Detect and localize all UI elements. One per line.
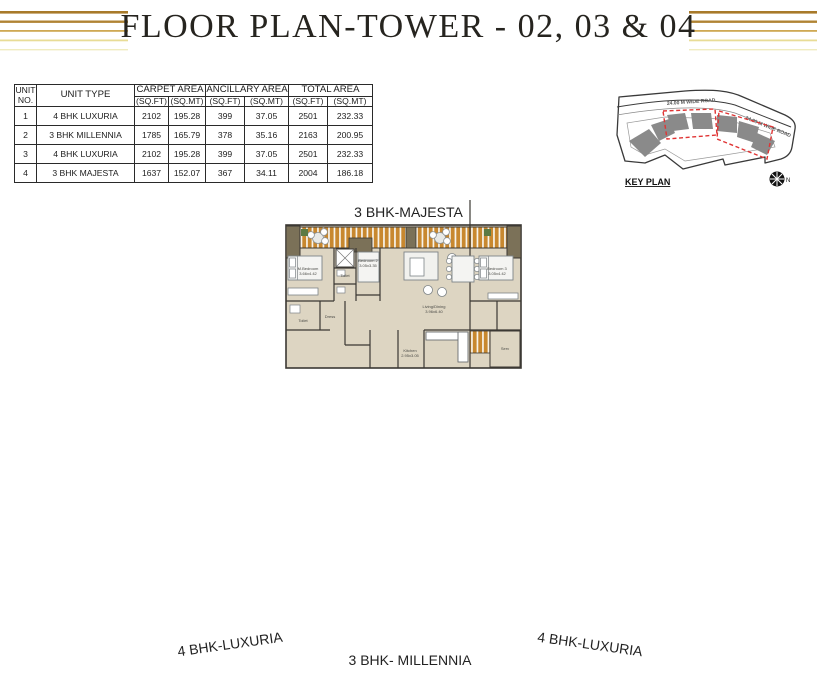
- svg-text:Serv: Serv: [501, 346, 509, 351]
- svg-text:3.05x3.35: 3.05x3.35: [359, 263, 377, 268]
- svg-text:3.96x6.40: 3.96x6.40: [425, 309, 443, 314]
- svg-text:N: N: [786, 178, 790, 184]
- svg-text:Toilet: Toilet: [298, 318, 308, 323]
- svg-text:KEY PLAN: KEY PLAN: [625, 177, 670, 187]
- svg-text:Dress: Dress: [325, 314, 335, 319]
- svg-text:3.05x4.42: 3.05x4.42: [488, 271, 506, 276]
- svg-text:Toilet: Toilet: [340, 273, 350, 278]
- svg-text:3.66x4.42: 3.66x4.42: [299, 271, 317, 276]
- svg-text:2.95x3.05: 2.95x3.05: [401, 353, 419, 358]
